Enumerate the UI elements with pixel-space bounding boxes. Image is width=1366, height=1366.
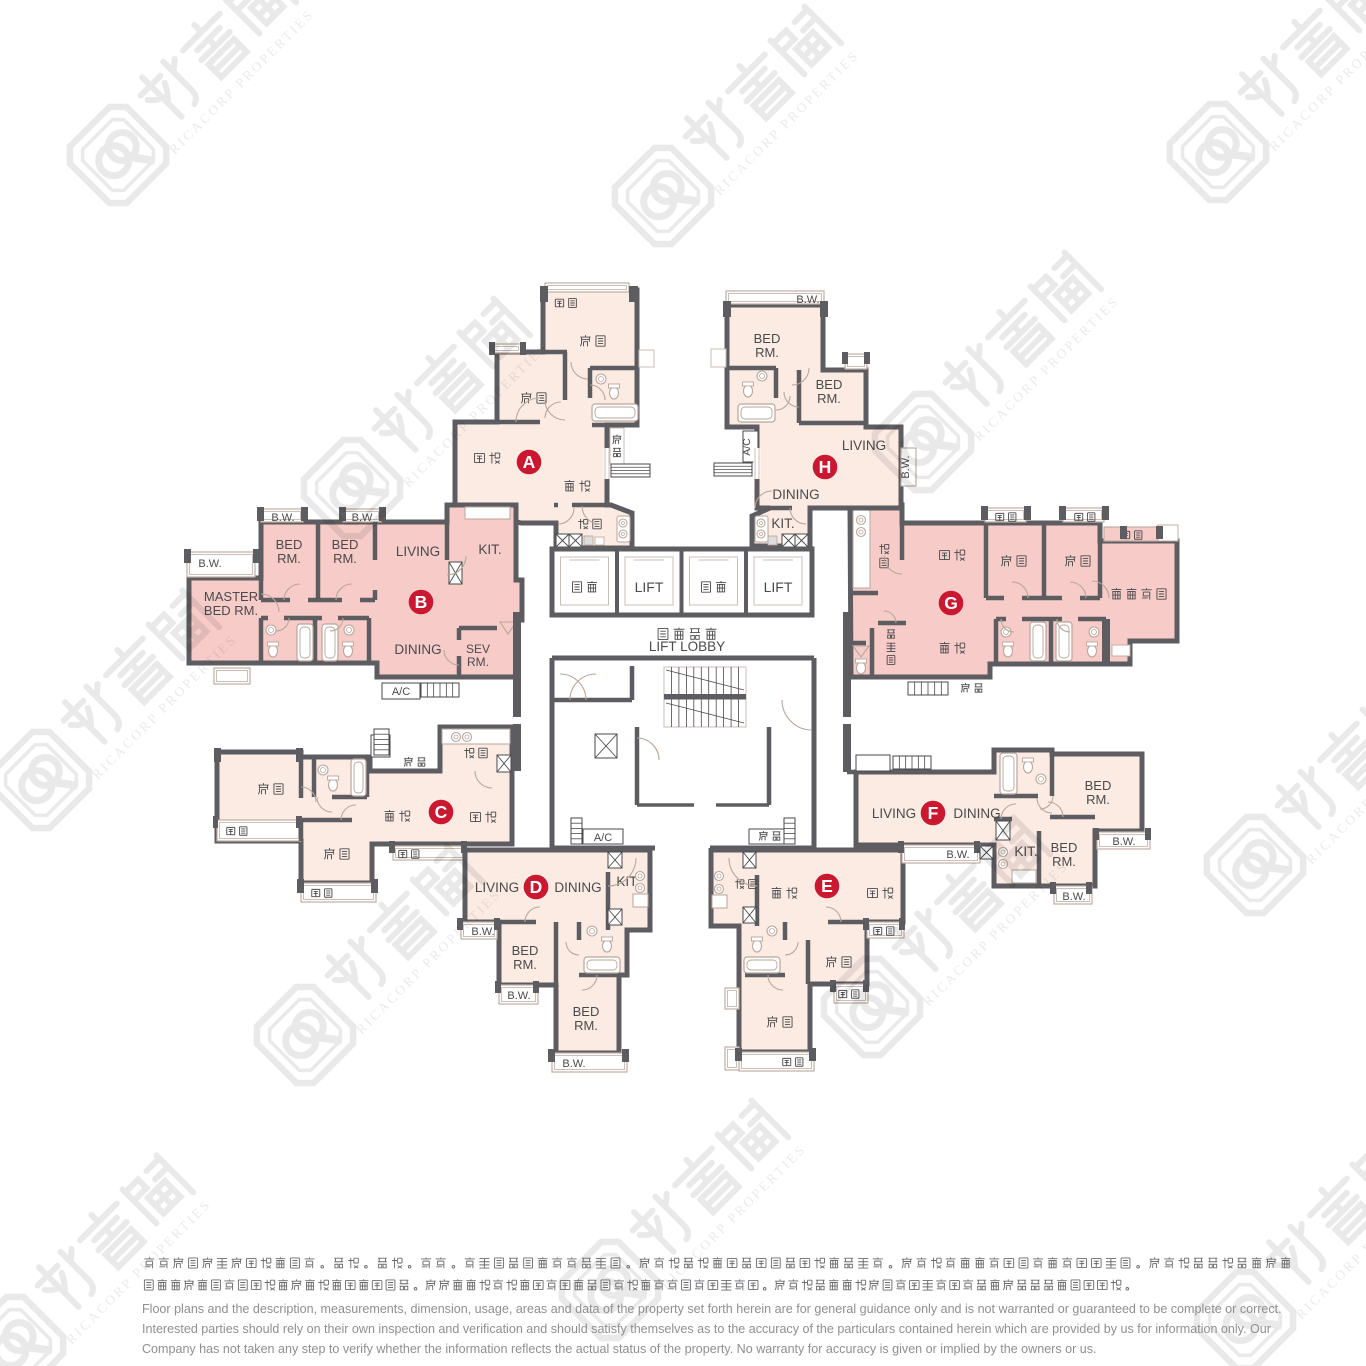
svg-text:BED RM.: BED RM. — [204, 603, 258, 618]
svg-text:DINING: DINING — [772, 487, 819, 502]
svg-text:A/C: A/C — [741, 438, 753, 456]
svg-text:RM.: RM. — [755, 345, 779, 360]
svg-text:C: C — [435, 802, 448, 822]
svg-text:MASTER: MASTER — [204, 589, 258, 604]
svg-text:B.W.: B.W. — [562, 1058, 585, 1070]
svg-text:RM.: RM. — [333, 551, 357, 566]
svg-text:B.W.: B.W. — [1112, 836, 1135, 848]
svg-text:BED: BED — [276, 537, 303, 552]
svg-text:RM.: RM. — [1086, 792, 1110, 807]
svg-text:B.W.: B.W. — [471, 926, 494, 938]
svg-text:B.W.: B.W. — [507, 990, 530, 1002]
svg-text:RM.: RM. — [467, 655, 489, 669]
svg-text:B.W.: B.W. — [198, 558, 221, 570]
svg-text:KIT.: KIT. — [478, 542, 501, 557]
svg-text:LIFT: LIFT — [764, 579, 793, 595]
svg-text:G: G — [944, 593, 958, 613]
svg-text:KIT.: KIT. — [771, 516, 794, 531]
svg-text:B.W.: B.W. — [1062, 891, 1085, 903]
svg-text:LIFT: LIFT — [635, 579, 664, 595]
svg-text:Floor plans and the descriptio: Floor plans and the description, measure… — [142, 1302, 1282, 1316]
svg-text:A: A — [523, 452, 536, 472]
svg-text:SEV: SEV — [466, 642, 490, 656]
svg-text:BED: BED — [573, 1004, 600, 1019]
svg-text:D: D — [530, 877, 543, 897]
svg-text:LIVING: LIVING — [396, 544, 440, 559]
svg-text:BED: BED — [1051, 840, 1078, 855]
svg-text:DINING: DINING — [394, 642, 441, 657]
svg-text:H: H — [819, 457, 832, 477]
svg-text:BED: BED — [754, 331, 781, 346]
svg-text:LIVING: LIVING — [872, 806, 916, 821]
svg-text:A/C: A/C — [594, 832, 612, 844]
svg-text:BED: BED — [1085, 778, 1112, 793]
svg-text:B.W.: B.W. — [796, 294, 819, 306]
svg-text:Interested parties should rely: Interested parties should rely on their … — [142, 1322, 1271, 1336]
svg-text:DINING: DINING — [953, 806, 1000, 821]
svg-text:BED: BED — [816, 377, 843, 392]
svg-text:LIFT LOBBY: LIFT LOBBY — [649, 639, 725, 654]
svg-text:BED: BED — [512, 943, 539, 958]
svg-text:E: E — [821, 876, 833, 896]
svg-text:RM.: RM. — [817, 391, 841, 406]
svg-text:RM.: RM. — [513, 957, 537, 972]
svg-text:B.W.: B.W. — [271, 512, 294, 524]
svg-text:DINING: DINING — [554, 880, 601, 895]
svg-text:B: B — [415, 592, 428, 612]
svg-text:B.W.: B.W. — [946, 849, 969, 861]
svg-text:Company has not taken any step: Company has not taken any step to verify… — [142, 1342, 1097, 1356]
svg-text:F: F — [928, 803, 939, 823]
svg-text:RM.: RM. — [277, 551, 301, 566]
svg-text:RM.: RM. — [574, 1018, 598, 1033]
svg-text:A/C: A/C — [392, 686, 410, 698]
